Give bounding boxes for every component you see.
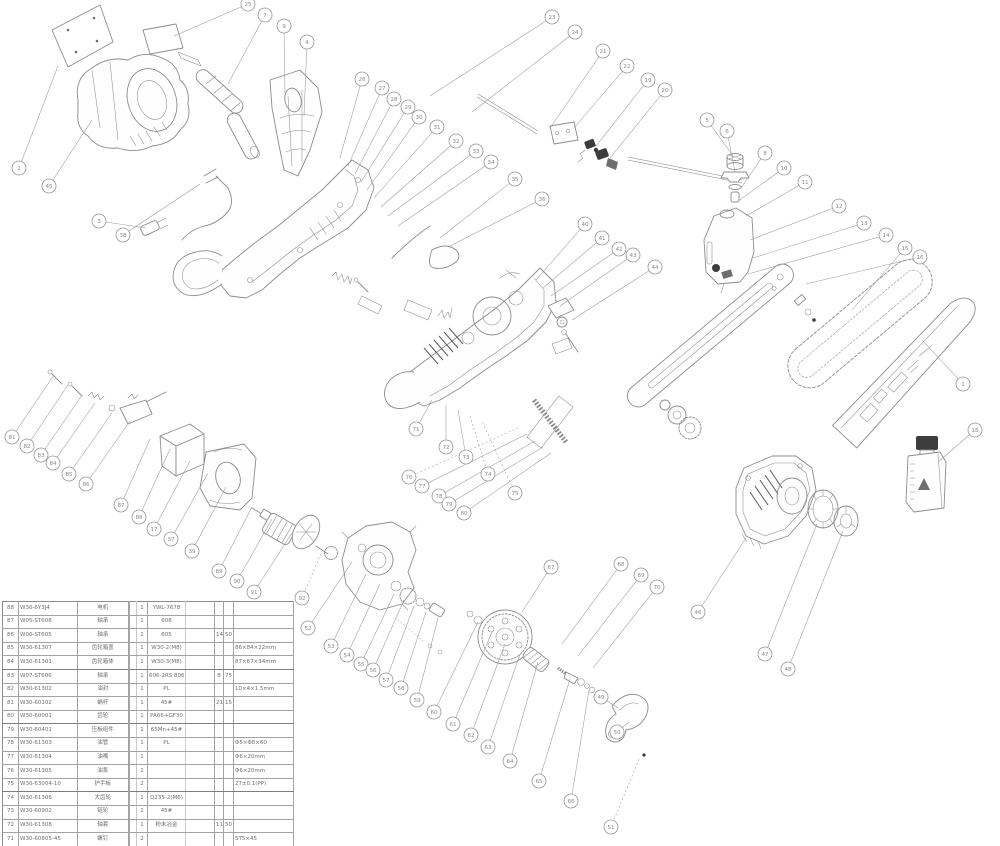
leader-line	[373, 600, 404, 670]
callout-balloon: 5	[700, 113, 714, 127]
leader-line	[753, 223, 864, 258]
svg-text:12: 12	[835, 204, 842, 210]
svg-text:9: 9	[282, 24, 286, 30]
chain-catcher-hook	[606, 694, 648, 756]
leader-line	[388, 151, 476, 216]
table-cell: 84	[3, 656, 19, 670]
leader-line	[121, 439, 150, 505]
worm-shaft-parts	[521, 646, 594, 693]
callout-balloon: 45	[42, 179, 56, 193]
svg-text:33: 33	[472, 149, 480, 155]
table-cell	[224, 724, 234, 738]
callout-balloon: 81	[5, 430, 19, 444]
table-cell: W05-ST608	[19, 615, 78, 629]
svg-text:2: 2	[17, 166, 21, 172]
table-cell: 1	[137, 724, 148, 738]
leader-line	[550, 51, 603, 128]
table-cell	[148, 751, 186, 765]
callout-balloon: 41	[595, 231, 609, 245]
leader-line	[123, 184, 200, 235]
table-cell	[186, 805, 215, 819]
callout-balloon: 86	[79, 477, 93, 491]
callout-balloon: 3	[92, 214, 106, 228]
sprocket-cover	[736, 456, 816, 549]
table-cell: 78	[3, 737, 19, 751]
svg-text:39: 39	[188, 549, 196, 555]
callout-balloon: 29	[401, 100, 415, 114]
table-cell	[129, 751, 137, 765]
svg-text:6: 6	[725, 129, 729, 135]
svg-text:81: 81	[8, 435, 16, 441]
table-cell	[224, 615, 234, 629]
callout-balloon: 69	[634, 568, 648, 582]
main-gear	[467, 610, 532, 664]
leader-line	[806, 257, 920, 284]
leader-line	[49, 120, 92, 186]
table-cell	[186, 833, 215, 846]
svg-text:49: 49	[597, 695, 605, 701]
svg-text:82: 82	[23, 444, 30, 450]
table-cell: 10×4×1.5mm	[234, 683, 294, 697]
callout-balloon: 87	[114, 498, 128, 512]
table-cell: 45#	[148, 697, 186, 711]
table-cell: W07-ST606	[19, 669, 78, 683]
svg-text:69: 69	[637, 573, 645, 579]
svg-text:68: 68	[617, 562, 625, 568]
table-cell	[224, 765, 234, 779]
callout-balloon: 72	[439, 440, 453, 454]
svg-text:30: 30	[415, 115, 423, 121]
svg-text:20: 20	[661, 88, 669, 94]
table-cell: 11	[215, 819, 224, 833]
callout-balloon: 12	[832, 199, 846, 213]
svg-text:26: 26	[358, 77, 366, 83]
table-cell: 齿轮箱体	[78, 656, 129, 670]
svg-text:40: 40	[581, 222, 589, 228]
table-cell	[129, 737, 137, 751]
callout-balloon: 43	[626, 248, 640, 262]
svg-text:64: 64	[506, 759, 514, 765]
leader-line	[610, 90, 665, 158]
table-cell: 82	[3, 683, 19, 697]
table-cell: Φ5×Φ8×60	[234, 737, 294, 751]
table-cell	[234, 805, 294, 819]
table-cell	[129, 683, 137, 697]
oil-bottle	[906, 436, 946, 512]
table-cell: PL	[148, 737, 186, 751]
motor-housing	[77, 54, 189, 150]
guide-bar	[623, 260, 816, 439]
table-cell	[234, 697, 294, 711]
svg-text:17: 17	[150, 527, 158, 533]
table-cell: 75	[3, 778, 19, 792]
table-cell: 1	[137, 615, 148, 629]
svg-text:8: 8	[763, 151, 767, 157]
svg-text:72: 72	[442, 445, 449, 451]
table-cell	[224, 737, 234, 751]
table-cell	[234, 724, 294, 738]
svg-text:10: 10	[780, 166, 788, 172]
table-cell: 1	[137, 710, 148, 724]
table-cell: 86	[3, 629, 19, 643]
callout-balloon: 36	[535, 192, 549, 206]
table-cell: 81	[3, 697, 19, 711]
svg-text:3: 3	[97, 219, 101, 225]
svg-text:91: 91	[250, 590, 258, 596]
table-cell: 21	[215, 697, 224, 711]
svg-text:15: 15	[901, 246, 909, 252]
table-cell: 1	[137, 656, 148, 670]
table-cell: W30-61301	[19, 656, 78, 670]
table-cell: Q235-2(M6)	[148, 792, 186, 806]
callout-balloon: 13	[857, 216, 871, 230]
table-cell: 轴承	[78, 629, 129, 643]
table-cell: W30-2(M8)	[148, 642, 186, 656]
svg-text:21: 21	[599, 49, 607, 55]
lockout-bracket	[550, 122, 578, 144]
table-cell: 50	[224, 629, 234, 643]
table-cell: 2	[137, 778, 148, 792]
table-cell	[129, 792, 137, 806]
svg-text:52: 52	[304, 626, 311, 632]
table-cell: YWL-7678	[148, 602, 186, 616]
callout-balloon: 66	[564, 794, 578, 808]
table-cell	[224, 642, 234, 656]
leader-line	[536, 224, 585, 280]
svg-text:83: 83	[37, 453, 45, 459]
callout-balloon: 61	[446, 717, 460, 731]
table-cell	[224, 683, 234, 697]
table-cell: W30-61304	[19, 751, 78, 765]
svg-text:22: 22	[623, 64, 630, 70]
table-cell	[224, 656, 234, 670]
table-cell	[186, 778, 215, 792]
table-cell	[215, 642, 224, 656]
callout-balloon: 73	[459, 450, 473, 464]
table-cell	[186, 710, 215, 724]
table-row: 77W30-61304油嘴1Φ6×20mm	[3, 751, 294, 765]
callout-balloon: 60	[427, 705, 441, 719]
table-cell	[215, 751, 224, 765]
table-cell: PL	[148, 683, 186, 697]
table-cell	[186, 669, 215, 683]
callout-balloon: 88	[132, 510, 146, 524]
callout-balloon: 9	[277, 19, 291, 33]
table-row: 88W30-6Y3J4电机1YWL-7678	[3, 602, 294, 616]
leader-line	[611, 757, 640, 827]
svg-text:78: 78	[435, 494, 443, 500]
callout-balloon: 19	[641, 73, 655, 87]
svg-text:77: 77	[418, 484, 426, 490]
svg-text:16: 16	[916, 255, 924, 261]
svg-text:56: 56	[369, 668, 377, 674]
table-row: 82W30-61302油封1PL10×4×1.5mm	[3, 683, 294, 697]
callout-balloon: 15	[898, 241, 912, 255]
svg-text:84: 84	[49, 461, 57, 467]
callout-balloon: 80	[457, 506, 471, 520]
table-cell: 轴承	[78, 615, 129, 629]
table-cell: 1	[137, 819, 148, 833]
callout-balloon: 30	[412, 110, 426, 124]
table-cell	[129, 710, 137, 724]
table-cell	[234, 669, 294, 683]
callout-balloon: 76	[402, 470, 416, 484]
svg-text:14: 14	[882, 233, 890, 239]
table-cell	[129, 833, 137, 846]
leader-line	[27, 385, 68, 446]
svg-text:63: 63	[484, 745, 492, 751]
table-cell: W30-61306	[19, 792, 78, 806]
callout-balloon: 44	[648, 260, 662, 274]
table-cell: 606-2RS 806	[148, 669, 186, 683]
callout-balloon: 67	[544, 560, 558, 574]
callout-balloon: 6	[720, 124, 734, 138]
table-cell: W30-61305	[19, 765, 78, 779]
svg-text:60: 60	[430, 710, 438, 716]
table-cell	[224, 751, 234, 765]
table-cell: 1	[137, 642, 148, 656]
leader-line	[765, 524, 817, 654]
leader-line	[139, 449, 170, 517]
table-cell: 齿轮	[78, 710, 129, 724]
callout-balloon: 70	[650, 580, 664, 594]
svg-text:67: 67	[547, 565, 555, 571]
table-cell: W30-61303	[19, 737, 78, 751]
callout-balloon: 20	[658, 83, 672, 97]
svg-text:28: 28	[390, 97, 398, 103]
callout-balloon: 26	[355, 72, 369, 86]
table-cell: 14	[215, 629, 224, 643]
table-cell	[215, 778, 224, 792]
callout-balloon: 10	[777, 161, 791, 175]
callout-balloon: 33	[469, 144, 483, 158]
svg-text:59: 59	[413, 698, 421, 704]
svg-text:29: 29	[404, 105, 412, 111]
callout-balloon: 1	[956, 377, 970, 391]
table-cell	[186, 819, 215, 833]
callout-balloon: 63	[481, 740, 495, 754]
armature	[252, 508, 338, 560]
table-cell: W30-60401	[19, 724, 78, 738]
leader-line	[748, 235, 886, 274]
callout-balloon: 35	[508, 172, 522, 186]
leader-line	[539, 679, 570, 781]
leader-line	[560, 255, 633, 306]
table-cell: PA66+GF30	[148, 710, 186, 724]
left-housing	[173, 160, 374, 298]
svg-text:45: 45	[45, 184, 53, 190]
table-cell	[148, 778, 186, 792]
svg-text:25: 25	[244, 2, 252, 8]
table-cell: 粉末冶金	[148, 819, 186, 833]
svg-text:19: 19	[644, 78, 652, 84]
callout-balloon: 47	[758, 647, 772, 661]
table-row: 85W30-61307齿轮箱盖1W30-2(M8)86×84×22mm	[3, 642, 294, 656]
callout-balloon: 31	[430, 120, 444, 134]
leader-line	[53, 403, 95, 463]
table-cell	[186, 683, 215, 697]
leader-line	[788, 531, 843, 669]
callout-balloon: 89	[212, 564, 226, 578]
table-cell: 72	[3, 819, 19, 833]
table-cell: 1	[137, 751, 148, 765]
leader-line	[174, 4, 248, 36]
leader-line	[171, 473, 208, 539]
leader-line	[430, 17, 552, 96]
callout-balloon: 57	[379, 673, 393, 687]
leader-line	[228, 15, 265, 84]
svg-text:7: 7	[263, 13, 267, 19]
svg-text:75: 75	[511, 491, 519, 497]
table-cell: 1	[137, 669, 148, 683]
table-cell	[215, 737, 224, 751]
callout-balloon: 18	[968, 423, 982, 437]
leader-line	[510, 662, 538, 761]
table-cell: 87×67×34mm	[234, 656, 294, 670]
table-cell	[215, 833, 224, 846]
table-cell: W30-6Y3J4	[19, 602, 78, 616]
callout-balloon: 2	[12, 161, 26, 175]
leader-line	[488, 654, 520, 747]
table-cell	[129, 724, 137, 738]
table-cell: 1	[137, 792, 148, 806]
lock-knob	[834, 506, 858, 536]
svg-text:24: 24	[571, 30, 579, 36]
svg-text:66: 66	[567, 799, 575, 805]
svg-text:86: 86	[82, 482, 90, 488]
callout-balloon: 75	[508, 486, 522, 500]
svg-text:90: 90	[233, 579, 241, 585]
table-cell	[129, 819, 137, 833]
callout-balloon: 50	[610, 725, 624, 739]
table-cell: 1	[137, 602, 148, 616]
table-cell: 15	[224, 697, 234, 711]
svg-text:54: 54	[343, 653, 351, 659]
svg-text:4: 4	[305, 40, 309, 46]
table-cell: 85	[3, 642, 19, 656]
table-cell	[148, 765, 186, 779]
table-cell: 链轮	[78, 805, 129, 819]
table-cell: 83	[3, 669, 19, 683]
table-row: 72W30-61308轴套1粉末冶金1150	[3, 819, 294, 833]
table-cell	[234, 819, 294, 833]
callout-balloon: 62	[464, 728, 478, 742]
leader-line	[12, 375, 54, 437]
table-cell: 大齿轮	[78, 792, 129, 806]
callout-balloon: 83	[34, 448, 48, 462]
table-cell: W30-61308	[19, 819, 78, 833]
leader-line	[698, 538, 746, 612]
svg-text:71: 71	[412, 427, 420, 433]
table-cell: 1	[137, 765, 148, 779]
table-row: 74W30-61306大齿轮1Q235-2(M6)	[3, 792, 294, 806]
table-cell: 电机	[78, 602, 129, 616]
leader-line	[453, 632, 492, 724]
svg-text:34: 34	[487, 160, 495, 166]
table-row: 86W06-ST605轴承16051450	[3, 629, 294, 643]
callout-balloon: 28	[387, 92, 401, 106]
table-cell: 螺钉	[78, 833, 129, 846]
leader-line	[470, 416, 488, 474]
table-cell	[186, 615, 215, 629]
svg-text:88: 88	[135, 515, 143, 521]
table-cell	[234, 602, 294, 616]
svg-text:51: 51	[607, 825, 615, 831]
svg-text:89: 89	[215, 569, 223, 575]
table-cell: 护手板	[78, 778, 129, 792]
svg-text:79: 79	[445, 502, 453, 508]
hand-guard	[270, 70, 322, 176]
leader-line	[852, 248, 905, 310]
leader-line	[374, 127, 437, 198]
table-cell: W30-60805-45	[19, 833, 78, 846]
table-cell: 1	[137, 697, 148, 711]
table-cell	[224, 778, 234, 792]
table-cell	[215, 615, 224, 629]
svg-text:37: 37	[167, 537, 175, 543]
svg-text:1: 1	[961, 382, 965, 388]
coil-spring-boxed	[527, 396, 573, 448]
callout-balloon: 34	[484, 155, 498, 169]
table-cell: 608	[148, 615, 186, 629]
table-cell	[129, 669, 137, 683]
svg-text:50: 50	[613, 730, 621, 736]
leader-line	[361, 107, 408, 182]
table-row: 81W30-60102蜗杆145#2115	[3, 697, 294, 711]
right-housing	[384, 268, 556, 409]
callout-balloon: 59	[410, 693, 424, 707]
table-cell: 2T±0.1(PP)	[234, 778, 294, 792]
callout-balloon: 27	[375, 81, 389, 95]
leader-line	[593, 587, 657, 668]
callout-balloon: 22	[620, 59, 634, 73]
table-cell	[186, 751, 215, 765]
gearbox-housing	[342, 522, 416, 610]
callout-balloon: 40	[578, 217, 592, 231]
table-row: 71W30-60805-45螺钉2ST5×45	[3, 833, 294, 846]
callout-balloon: 84	[46, 456, 60, 470]
callout-balloon: 38	[116, 228, 130, 242]
svg-text:48: 48	[784, 667, 792, 673]
table-cell: 88	[3, 602, 19, 616]
table-cell	[129, 642, 137, 656]
svg-text:18: 18	[971, 428, 979, 434]
parts-table-wrap: 88W30-6Y3J4电机1YWL-767887W05-ST608轴承16088…	[2, 601, 294, 846]
table-row: 76W30-61305油泵1Φ6×20mm	[3, 765, 294, 779]
table-cell	[148, 833, 186, 846]
leader-line	[86, 421, 130, 484]
scabbard	[833, 289, 984, 448]
table-cell	[234, 710, 294, 724]
svg-text:31: 31	[433, 125, 441, 131]
switch-assembly	[120, 392, 166, 424]
callout-balloon: 46	[691, 605, 705, 619]
leader-line	[340, 79, 362, 158]
callout-balloon: 85	[62, 467, 76, 481]
table-cell	[215, 710, 224, 724]
brake-parts	[332, 226, 452, 320]
leader-line	[254, 533, 292, 592]
table-cell: 油泵	[78, 765, 129, 779]
table-cell: 1	[137, 683, 148, 697]
callout-balloon: 82	[20, 439, 34, 453]
rating-plate	[52, 5, 113, 67]
callout-balloon: 65	[532, 774, 546, 788]
table-cell: 油嘴	[78, 751, 129, 765]
table-cell: W30-3(M8)	[148, 656, 186, 670]
svg-text:61: 61	[449, 722, 457, 728]
table-cell: 71	[3, 833, 19, 846]
